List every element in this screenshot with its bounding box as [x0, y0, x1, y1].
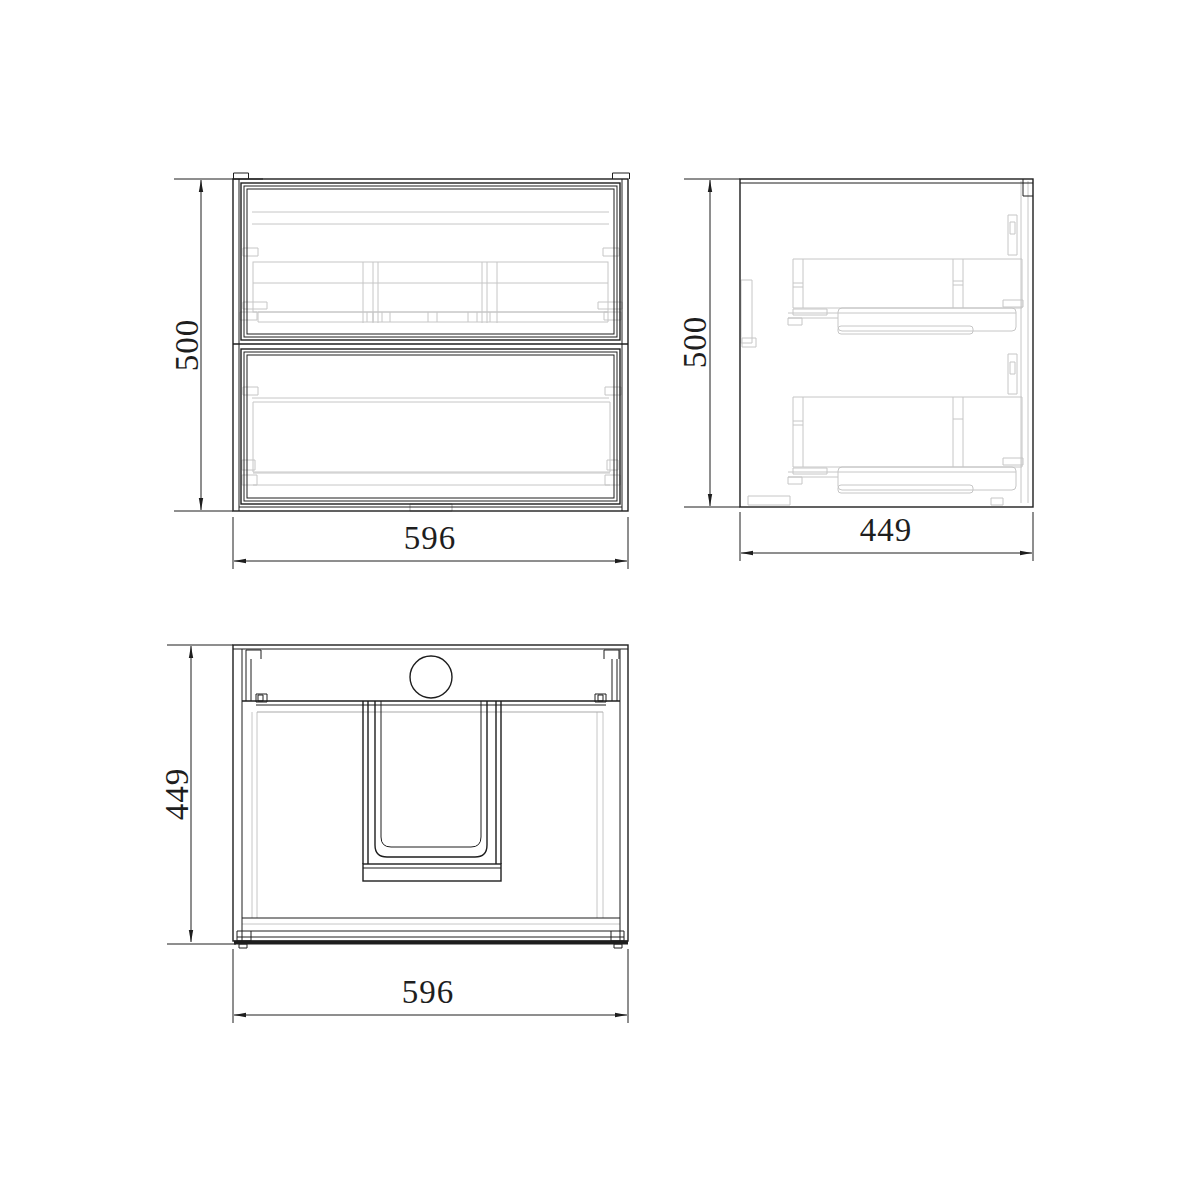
side-misc-hidden — [741, 181, 1028, 505]
front-drawer2-face-step2 — [247, 355, 614, 498]
side-depth-dimension: 449 — [740, 512, 1033, 561]
front-width-dimension: 596 — [233, 517, 628, 569]
top-basin-outer-walls — [363, 701, 501, 864]
top-interior-hidden-walls — [242, 712, 620, 924]
top-basin-bottom-bar — [363, 864, 501, 881]
front-drawer1-hidden-hardware — [240, 212, 622, 323]
top-view: 449 596 — [159, 645, 628, 1023]
drawing-sheet: 500 596 500 — [0, 0, 1200, 1200]
top-depth-dimension-label: 449 — [159, 768, 195, 821]
side-drawer2-runner2 — [838, 485, 973, 493]
side-cabinet-outline — [740, 179, 1033, 507]
front-drawer1-box-hidden — [253, 262, 608, 312]
front-drawer2 — [241, 349, 620, 504]
front-height-dimension: 500 — [169, 179, 263, 511]
front-side-panels — [239, 179, 622, 511]
side-drawer2-hidden — [788, 354, 1023, 493]
top-width-dimension: 596 — [233, 949, 628, 1023]
side-drawer2-runner — [838, 467, 1016, 490]
top-front-corner-notches — [237, 931, 624, 948]
top-depth-dimension: 449 — [159, 645, 236, 944]
top-basin-bowl-inner — [381, 701, 481, 847]
top-mount-bracket-left — [246, 650, 261, 701]
front-top-mount-caps — [234, 173, 630, 179]
top-mount-bracket-right — [604, 650, 619, 701]
front-drawer2-hidden-hardware — [242, 387, 621, 485]
side-drawer1-runner — [838, 308, 1016, 331]
side-drawer1-runner2 — [838, 326, 973, 334]
top-faucet-hole — [410, 656, 452, 698]
top-width-dimension-label: 596 — [402, 974, 455, 1010]
side-drawer1-hidden — [788, 215, 1023, 334]
front-view: 500 596 — [169, 173, 630, 569]
front-width-dimension-label: 596 — [404, 520, 457, 556]
top-basin-cutout — [363, 701, 501, 881]
top-cabinet-outline — [233, 645, 628, 941]
front-cabinet-outline — [233, 179, 628, 511]
side-depth-dimension-label: 449 — [860, 512, 913, 548]
side-height-dimension-label: 500 — [677, 316, 713, 369]
side-drawer2-box — [788, 354, 1023, 484]
technical-drawing-canvas: 500 596 500 — [0, 0, 1200, 1200]
front-height-dimension-label: 500 — [169, 319, 205, 372]
top-front-edge-lines — [237, 918, 624, 937]
side-view: 500 449 — [677, 179, 1033, 561]
front-drawer2-face-step1 — [244, 352, 617, 501]
side-height-dimension: 500 — [677, 179, 740, 507]
front-drawer2-face — [241, 349, 620, 504]
top-basin-bowl-outer — [375, 701, 487, 857]
top-inner-walls — [233, 649, 628, 941]
